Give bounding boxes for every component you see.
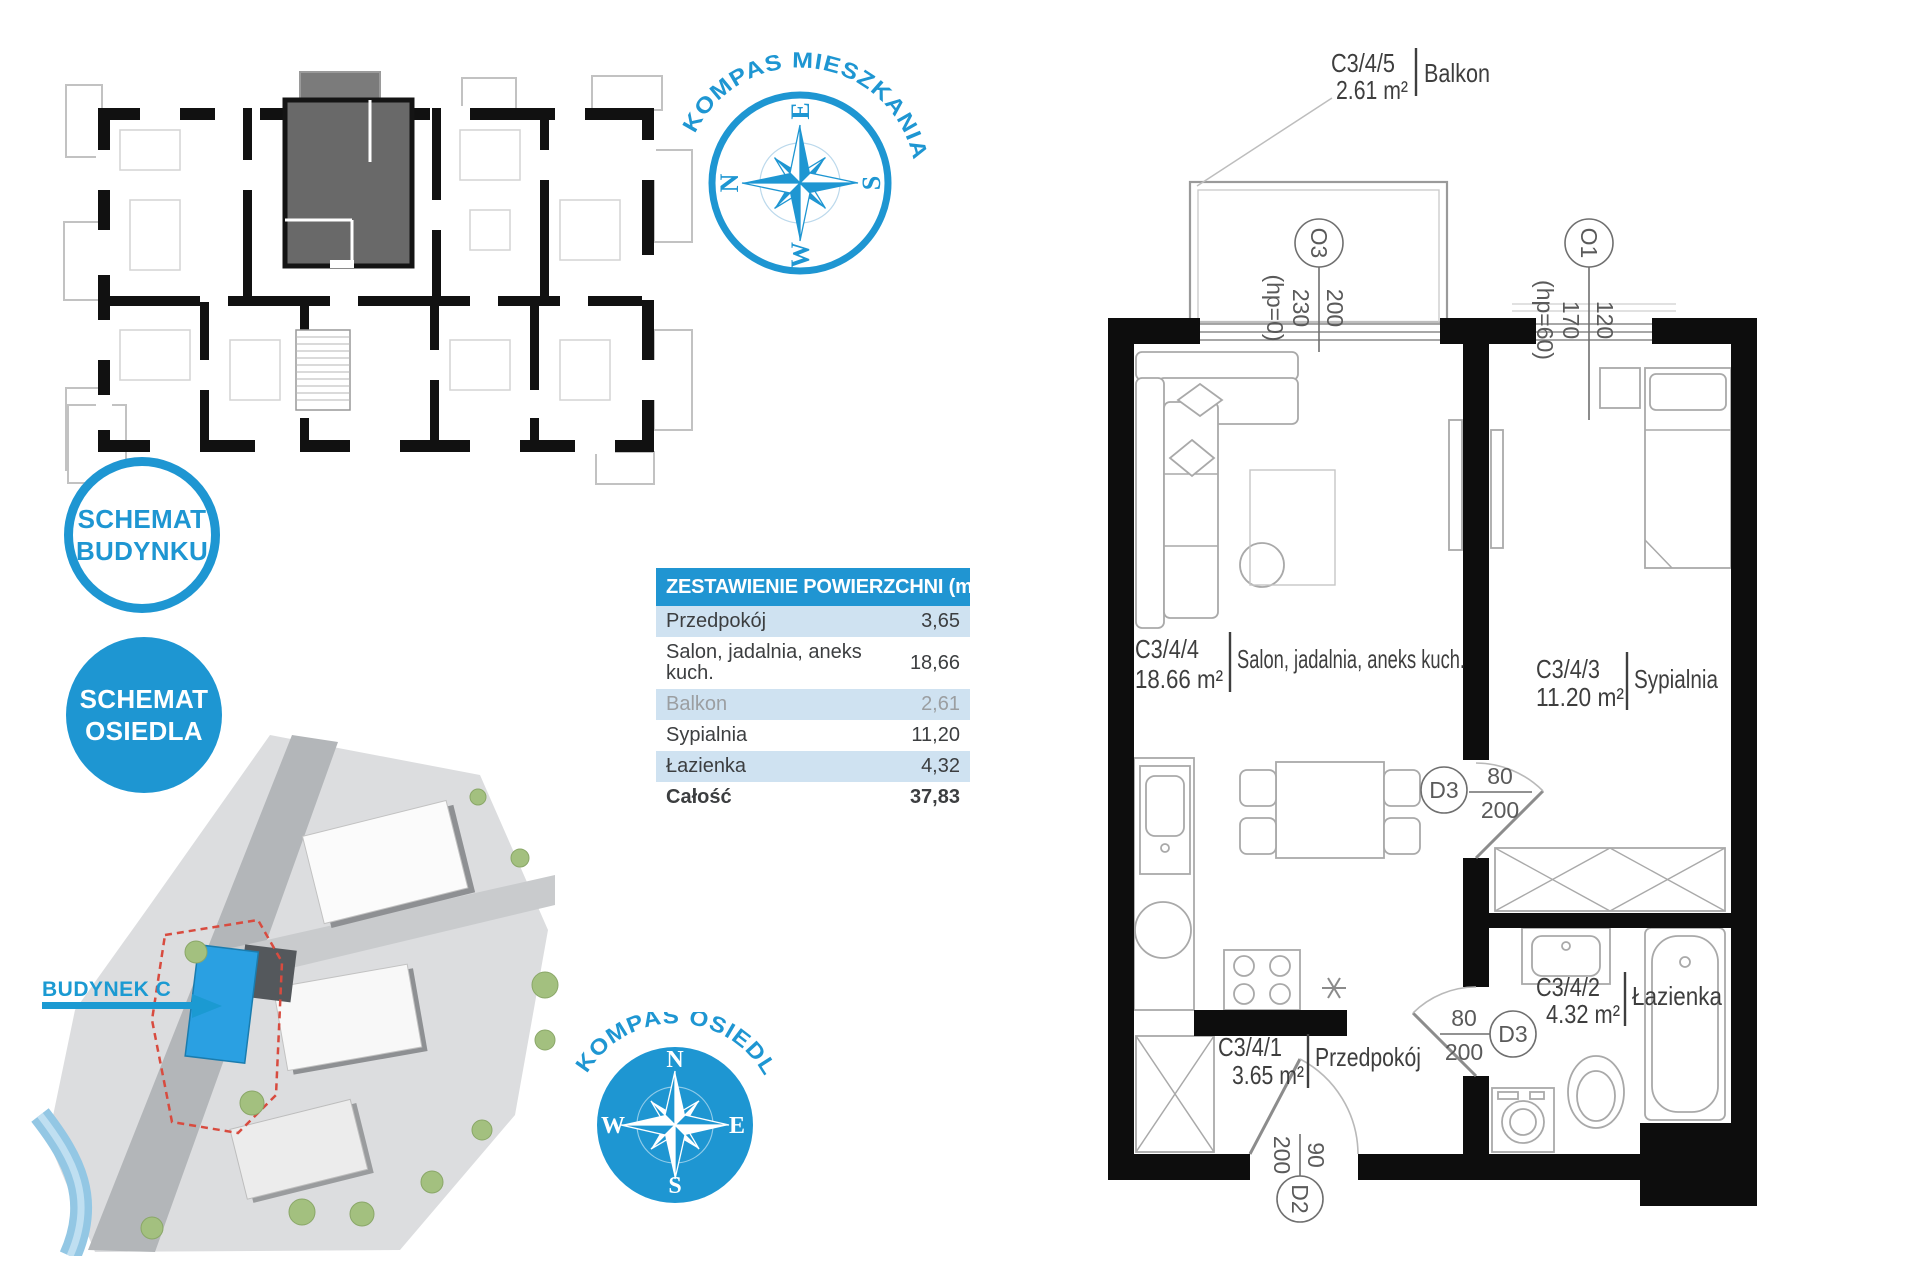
highlighted-unit [285, 72, 412, 268]
svg-text:C3/4/5: C3/4/5 [1331, 48, 1395, 78]
svg-text:(hp=0): (hp=0) [1262, 274, 1288, 341]
svg-text:200: 200 [1269, 1136, 1295, 1174]
room-area: 18,66 [910, 653, 960, 674]
cardinal-n: N [666, 1047, 684, 1073]
svg-text:C3/4/2: C3/4/2 [1536, 972, 1600, 1002]
svg-text:D3: D3 [1429, 777, 1458, 803]
svg-text:Przedpokój: Przedpokój [1315, 1042, 1421, 1072]
table-row: Balkon 2,61 [656, 689, 970, 720]
svg-text:11.20 m²: 11.20 m² [1536, 682, 1624, 712]
room-name: Łazienka [666, 756, 746, 777]
room-name: Sypialnia [666, 725, 747, 746]
svg-text:80: 80 [1451, 1005, 1477, 1031]
door-d3-bathroom-dim: 80 200 D3 [1440, 1005, 1536, 1065]
apartment-floor-plan: C3/4/5 2.61 m² Balkon C3/4/4 18.66 m² Sa… [1080, 35, 1780, 1261]
building-floor-schematic [55, 55, 720, 495]
room-area: 2,61 [921, 694, 960, 715]
cardinal-w: W [786, 242, 815, 268]
room-name: Salon, jadalnia, aneks kuch. [666, 642, 910, 684]
cardinal-e: E [786, 102, 815, 119]
hall-furniture [1136, 1036, 1214, 1152]
label-salon: C3/4/4 18.66 m² Salon, jadalnia, aneks k… [1135, 632, 1465, 694]
svg-text:3.65 m²: 3.65 m² [1232, 1060, 1304, 1090]
room-name: Całość [666, 787, 732, 808]
badge-line: BUDYNKU [76, 535, 208, 567]
cardinal-s: S [668, 1173, 681, 1199]
ceiling-lamp-icon [1322, 978, 1346, 998]
svg-text:C3/4/3: C3/4/3 [1536, 654, 1600, 684]
label-balkon: C3/4/5 2.61 m² Balkon [1331, 48, 1490, 105]
room-area: 11,20 [911, 725, 960, 746]
svg-text:200: 200 [1481, 797, 1519, 823]
table-row: Sypialnia 11,20 [656, 720, 970, 751]
svg-text:18.66 m²: 18.66 m² [1135, 664, 1223, 694]
cardinal-s: S [857, 176, 886, 190]
compass-estate: KOMPAS OSIEDLA N E S W [555, 1012, 800, 1242]
svg-text:O3: O3 [1306, 228, 1332, 259]
cardinal-n: N [715, 173, 744, 192]
room-name: Przedpokój [666, 611, 766, 632]
table-row: Przedpokój 3,65 [656, 606, 970, 637]
svg-text:4.32 m²: 4.32 m² [1546, 999, 1620, 1029]
svg-text:80: 80 [1487, 763, 1513, 789]
svg-text:Sypialnia: Sypialnia [1634, 664, 1718, 694]
table-row: Salon, jadalnia, aneks kuch. 18,66 [656, 637, 970, 689]
table-row-total: Całość 37,83 [656, 782, 970, 813]
building-stairwell [296, 330, 350, 410]
window-o3-glazing [1200, 324, 1440, 340]
arrow-shaft [42, 1002, 192, 1009]
label-sypialnia: C3/4/3 11.20 m² Sypialnia [1536, 652, 1718, 712]
svg-text:230: 230 [1288, 289, 1314, 327]
svg-text:120: 120 [1592, 301, 1618, 339]
svg-text:2.61 m²: 2.61 m² [1336, 75, 1408, 105]
svg-text:200: 200 [1322, 289, 1348, 327]
svg-text:(hp=60): (hp=60) [1532, 280, 1558, 360]
svg-text:200: 200 [1445, 1039, 1483, 1065]
svg-text:D3: D3 [1498, 1021, 1527, 1047]
budynek-c-label: BUDYNEK C [42, 978, 171, 1001]
table-row: Łazienka 4,32 [656, 751, 970, 782]
cardinal-w: W [601, 1113, 625, 1139]
room-area: 4,32 [921, 756, 960, 777]
svg-text:C3/4/1: C3/4/1 [1218, 1032, 1282, 1062]
svg-text:D2: D2 [1287, 1184, 1313, 1213]
svg-text:C3/4/4: C3/4/4 [1135, 634, 1199, 664]
area-summary-table: ZESTAWIENIE POWIERZCHNI (m²) Przedpokój … [656, 568, 970, 813]
svg-text:Łazienka: Łazienka [1632, 981, 1722, 1011]
compass-apartment: KOMPAS MIESZKANIA N E S W [660, 40, 950, 290]
room-area: 37,83 [910, 787, 960, 808]
label-przedpokoj: C3/4/1 3.65 m² Przedpokój [1218, 1032, 1421, 1090]
svg-text:O1: O1 [1576, 228, 1602, 259]
badge-line: SCHEMAT [80, 683, 209, 715]
svg-text:90: 90 [1303, 1142, 1329, 1168]
svg-text:Balkon: Balkon [1424, 58, 1490, 88]
room-name: Balkon [666, 694, 727, 715]
room-area: 3,65 [921, 611, 960, 632]
door-d2-dim: 90 200 D2 [1269, 1134, 1329, 1222]
estate-site-map: BUDYNEK C [28, 728, 573, 1256]
cardinal-e: E [729, 1113, 745, 1139]
schemat-budynku-badge[interactable]: SCHEMAT BUDYNKU [64, 457, 220, 613]
table-header: ZESTAWIENIE POWIERZCHNI (m²) [656, 568, 970, 606]
bedroom-furniture [1491, 368, 1731, 911]
badge-line: SCHEMAT [78, 503, 207, 535]
svg-text:Salon, jadalnia, aneks kuch.: Salon, jadalnia, aneks kuch. [1237, 644, 1465, 674]
svg-text:170: 170 [1558, 301, 1584, 339]
